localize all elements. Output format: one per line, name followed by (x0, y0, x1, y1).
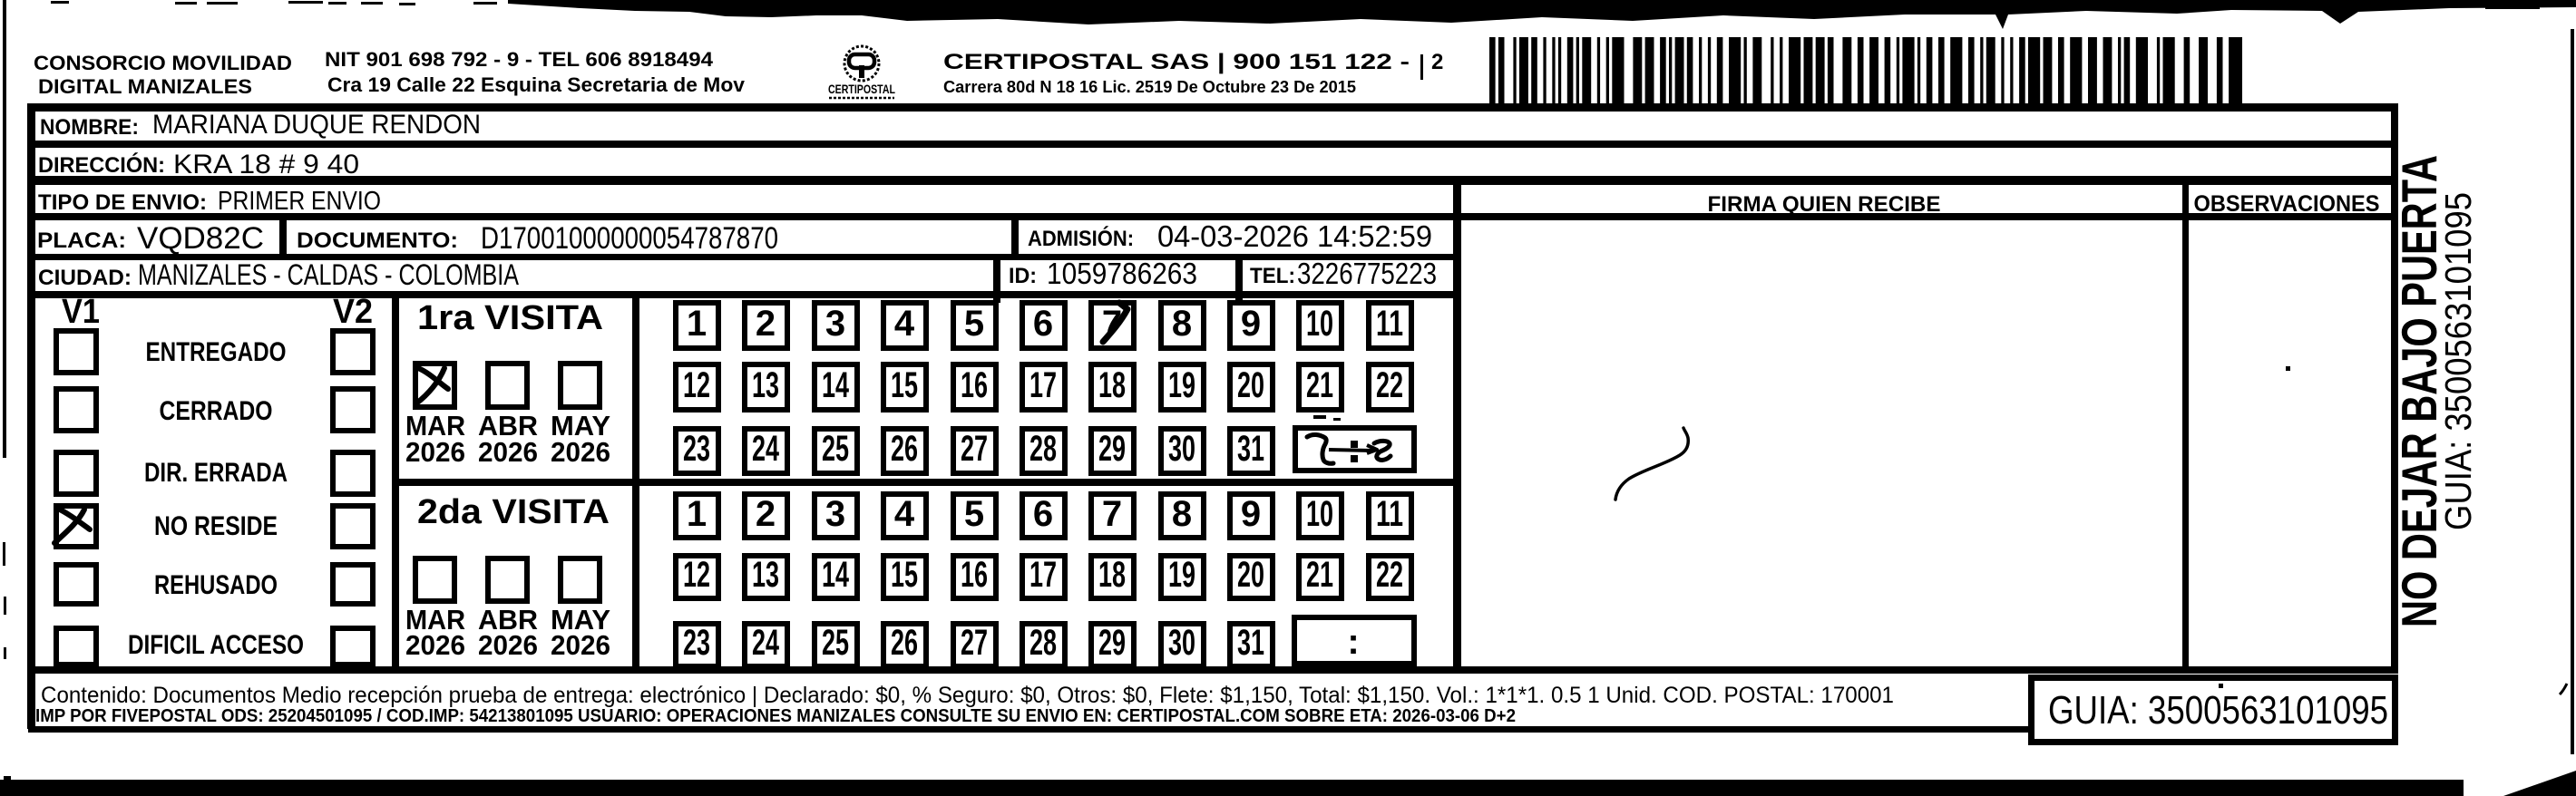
svg-text:23: 23 (683, 429, 710, 469)
svg-text:21: 21 (1306, 365, 1333, 405)
svg-text:19: 19 (1168, 555, 1195, 595)
svg-text:16: 16 (961, 555, 988, 595)
svg-text:Cra 19 Calle 22 Esquina Secret: Cra 19 Calle 22 Esquina Secretaria de Mo… (327, 73, 746, 96)
svg-text:17: 17 (1029, 365, 1057, 405)
svg-text:NIT 901 698 792 - 9 - TEL 606: NIT 901 698 792 - 9 - TEL 606 8918494 (325, 48, 714, 71)
svg-text:23: 23 (683, 623, 710, 663)
svg-text:ENTREGADO: ENTREGADO (146, 337, 287, 367)
svg-text:1059786263: 1059786263 (1047, 257, 1197, 290)
svg-text:10: 10 (1306, 494, 1333, 534)
svg-text:30: 30 (1168, 623, 1195, 663)
svg-text:2026: 2026 (405, 436, 465, 468)
svg-text:TEL:: TEL: (1250, 264, 1295, 288)
svg-text:6: 6 (1033, 304, 1053, 344)
svg-text:26: 26 (891, 429, 918, 469)
svg-text:4: 4 (894, 304, 915, 344)
svg-text:28: 28 (1029, 623, 1057, 663)
svg-text:NOMBRE:: NOMBRE: (40, 115, 139, 140)
svg-text:NO RESIDE: NO RESIDE (154, 511, 278, 541)
svg-text:13: 13 (752, 555, 779, 595)
svg-text:2: 2 (756, 494, 776, 534)
svg-text:DIFICIL ACCESO: DIFICIL ACCESO (128, 630, 304, 660)
svg-text:15: 15 (891, 365, 918, 405)
svg-text:CERTIPOSTAL SAS | 900 151 122: CERTIPOSTAL SAS | 900 151 122 - (943, 50, 1410, 74)
svg-text:CIUDAD:: CIUDAD: (38, 266, 132, 290)
svg-text:5: 5 (964, 304, 984, 344)
svg-text:3: 3 (825, 304, 845, 344)
svg-text::: : (1347, 622, 1359, 662)
svg-text:V1: V1 (62, 293, 100, 331)
svg-text:CONSORCIO MOVILIDAD: CONSORCIO MOVILIDAD (34, 52, 292, 74)
svg-text:KRA 18 # 9 40: KRA 18 # 9 40 (173, 150, 359, 180)
svg-text:5: 5 (964, 494, 984, 534)
svg-text:DIGITAL MANIZALES: DIGITAL MANIZALES (38, 75, 252, 98)
svg-text:ID:: ID: (1009, 264, 1037, 288)
svg-text:TIPO DE ENVIO:: TIPO DE ENVIO: (38, 190, 207, 215)
svg-text:MARIANA DUQUE RENDON: MARIANA DUQUE RENDON (152, 110, 481, 140)
svg-text:30: 30 (1168, 429, 1195, 469)
svg-text:PLACA:: PLACA: (37, 228, 126, 253)
svg-text:4: 4 (894, 494, 915, 534)
svg-text:3226775223: 3226775223 (1297, 257, 1437, 290)
svg-text:ADMISIÓN:: ADMISIÓN: (1028, 226, 1134, 251)
svg-text:Carrera 80d N 18 16 Lic. 2519: Carrera 80d N 18 16 Lic. 2519 De Octubre… (943, 78, 1356, 96)
svg-text:9: 9 (1241, 494, 1261, 534)
svg-text:7: 7 (1102, 494, 1122, 534)
svg-text:DIR. ERRADA: DIR. ERRADA (144, 458, 288, 488)
svg-text:27: 27 (961, 623, 988, 663)
svg-text:OBSERVACIONES: OBSERVACIONES (2194, 191, 2380, 217)
svg-text:29: 29 (1098, 623, 1126, 663)
svg-text:IMP POR FIVEPOSTAL ODS: 252045: IMP POR FIVEPOSTAL ODS: 25204501095 / CO… (35, 706, 1516, 726)
svg-text:24: 24 (752, 429, 780, 469)
svg-text:REHUSADO: REHUSADO (154, 570, 278, 600)
svg-text:12: 12 (683, 555, 710, 595)
svg-text:1ra VISITA: 1ra VISITA (417, 299, 603, 337)
svg-text:04-03-2026 14:52:59: 04-03-2026 14:52:59 (1157, 219, 1432, 253)
svg-text:VQD82C: VQD82C (137, 221, 264, 256)
svg-text:26: 26 (891, 623, 918, 663)
svg-text:12: 12 (683, 365, 710, 405)
svg-text:V2: V2 (333, 293, 373, 331)
svg-text:14: 14 (822, 555, 850, 595)
svg-text:31: 31 (1237, 623, 1264, 663)
svg-text:2026: 2026 (478, 436, 538, 468)
svg-text:18: 18 (1098, 365, 1126, 405)
svg-text:18: 18 (1098, 555, 1126, 595)
svg-text:GUIA: 3500563101095: GUIA: 3500563101095 (2048, 688, 2388, 733)
svg-text:20: 20 (1237, 365, 1264, 405)
svg-text:DIRECCIÓN:: DIRECCIÓN: (38, 152, 165, 178)
svg-text:3: 3 (825, 494, 845, 534)
svg-text:11: 11 (1376, 304, 1403, 344)
svg-text:8: 8 (1172, 304, 1192, 344)
svg-text:11: 11 (1376, 494, 1403, 534)
svg-text:9: 9 (1241, 304, 1261, 344)
svg-text:2: 2 (756, 304, 776, 344)
svg-text:6: 6 (1033, 494, 1053, 534)
svg-text:8: 8 (1172, 494, 1192, 534)
svg-text:PRIMER ENVIO: PRIMER ENVIO (218, 187, 381, 216)
svg-text:2026: 2026 (551, 629, 610, 661)
svg-text:13: 13 (752, 365, 779, 405)
svg-text:20: 20 (1237, 555, 1264, 595)
svg-text:2026: 2026 (551, 436, 610, 468)
svg-text:7: 7 (1102, 304, 1122, 344)
svg-text:27: 27 (961, 429, 988, 469)
svg-text:28: 28 (1029, 429, 1057, 469)
svg-text:22: 22 (1376, 555, 1403, 595)
svg-text:FIRMA QUIEN RECIBE: FIRMA QUIEN RECIBE (1708, 192, 1941, 217)
svg-text:Contenido: Documentos Medio re: Contenido: Documentos Medio recepción pr… (41, 683, 1894, 708)
svg-text:2: 2 (1431, 50, 1443, 74)
svg-text:2da VISITA: 2da VISITA (417, 493, 610, 531)
svg-text:19: 19 (1168, 365, 1195, 405)
svg-text:CERRADO: CERRADO (160, 396, 273, 426)
svg-text:22: 22 (1376, 365, 1403, 405)
svg-text:31: 31 (1237, 429, 1264, 469)
svg-text:25: 25 (822, 429, 849, 469)
svg-text:25: 25 (822, 623, 849, 663)
svg-text:1: 1 (687, 494, 707, 534)
svg-text:17: 17 (1029, 555, 1057, 595)
svg-text:D17001000000054787870: D17001000000054787870 (481, 221, 778, 256)
svg-text:1: 1 (687, 304, 707, 344)
svg-text:21: 21 (1306, 555, 1333, 595)
svg-text:GUIA: 3500563101095: GUIA: 3500563101095 (2437, 192, 2479, 530)
svg-text:24: 24 (752, 623, 780, 663)
svg-text:29: 29 (1098, 429, 1126, 469)
svg-text:DOCUMENTO:: DOCUMENTO: (297, 228, 458, 253)
svg-text:10: 10 (1306, 304, 1333, 344)
svg-text:2026: 2026 (478, 629, 538, 661)
svg-text:2026: 2026 (405, 629, 465, 661)
svg-text:16: 16 (961, 365, 988, 405)
svg-text:14: 14 (822, 365, 850, 405)
svg-text:MANIZALES - CALDAS - COLOMBIA: MANIZALES - CALDAS - COLOMBIA (138, 258, 520, 291)
svg-text:15: 15 (891, 555, 918, 595)
